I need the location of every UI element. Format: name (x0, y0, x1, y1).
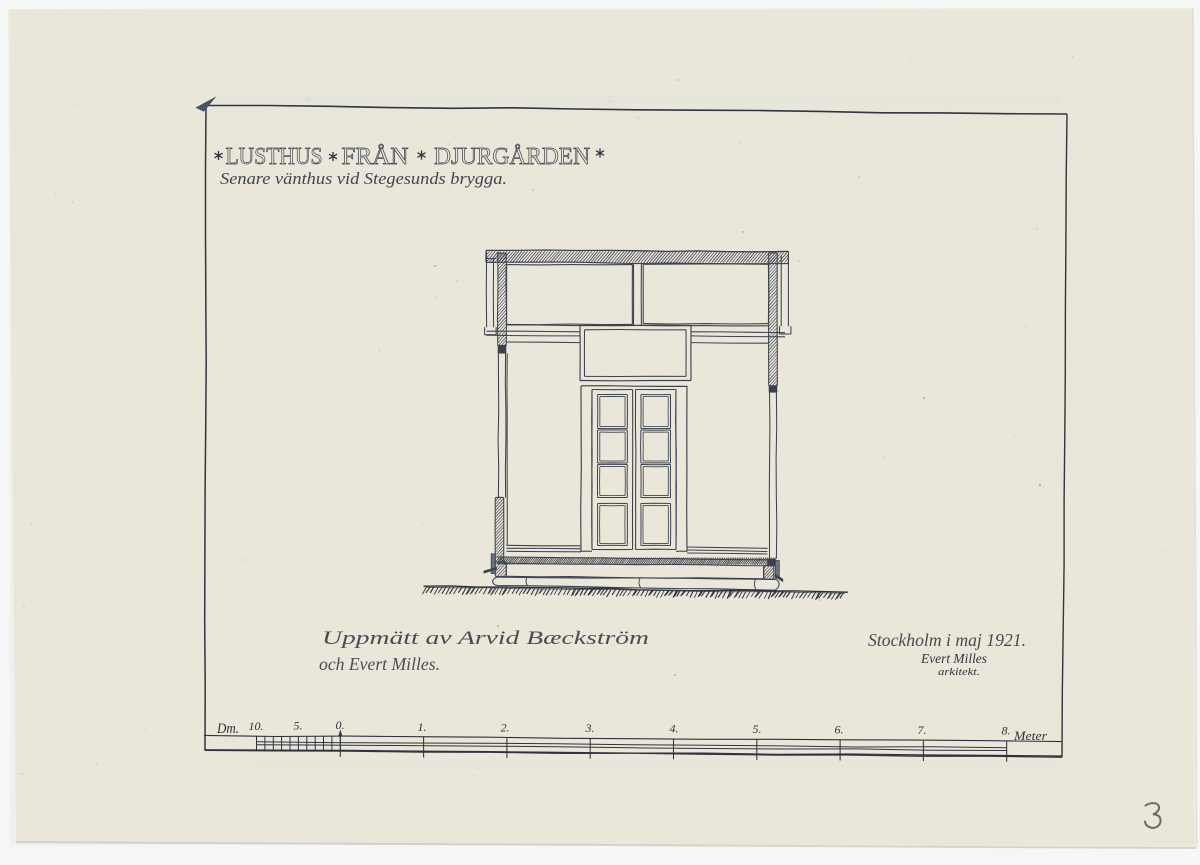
svg-text:LUSTHUS: LUSTHUS (226, 144, 323, 170)
svg-text:4.: 4. (670, 722, 679, 736)
svg-text:8.: 8. (1002, 724, 1011, 738)
svg-text:DJURGÅRDEN: DJURGÅRDEN (434, 144, 590, 170)
svg-text:FRÅN: FRÅN (342, 144, 409, 170)
svg-text:Stockholm i maj 1921.: Stockholm i maj 1921. (868, 630, 1026, 650)
svg-text:2.: 2. (501, 721, 510, 735)
svg-text:7.: 7. (918, 723, 927, 737)
svg-text:Senare vänthus vid Stegesunds: Senare vänthus vid Stegesunds brygga. (220, 169, 507, 188)
svg-text:5.: 5. (753, 722, 762, 736)
svg-text:10.: 10. (249, 719, 264, 733)
svg-text:arkitekt.: arkitekt. (938, 666, 980, 678)
svg-text:Dm.: Dm. (216, 721, 239, 737)
svg-text:Evert Milles: Evert Milles (920, 651, 987, 666)
svg-text:Meter: Meter (1013, 728, 1048, 743)
svg-text:1.: 1. (418, 720, 427, 734)
svg-text:6.: 6. (835, 723, 844, 737)
svg-text:och Evert Milles.: och Evert Milles. (319, 654, 440, 674)
svg-text:Uppmätt av Arvid Bæckström: Uppmätt av Arvid Bæckström (322, 629, 649, 649)
svg-text:0.: 0. (336, 718, 345, 732)
svg-text:3.: 3. (585, 721, 595, 735)
svg-text:5.: 5. (294, 719, 303, 733)
